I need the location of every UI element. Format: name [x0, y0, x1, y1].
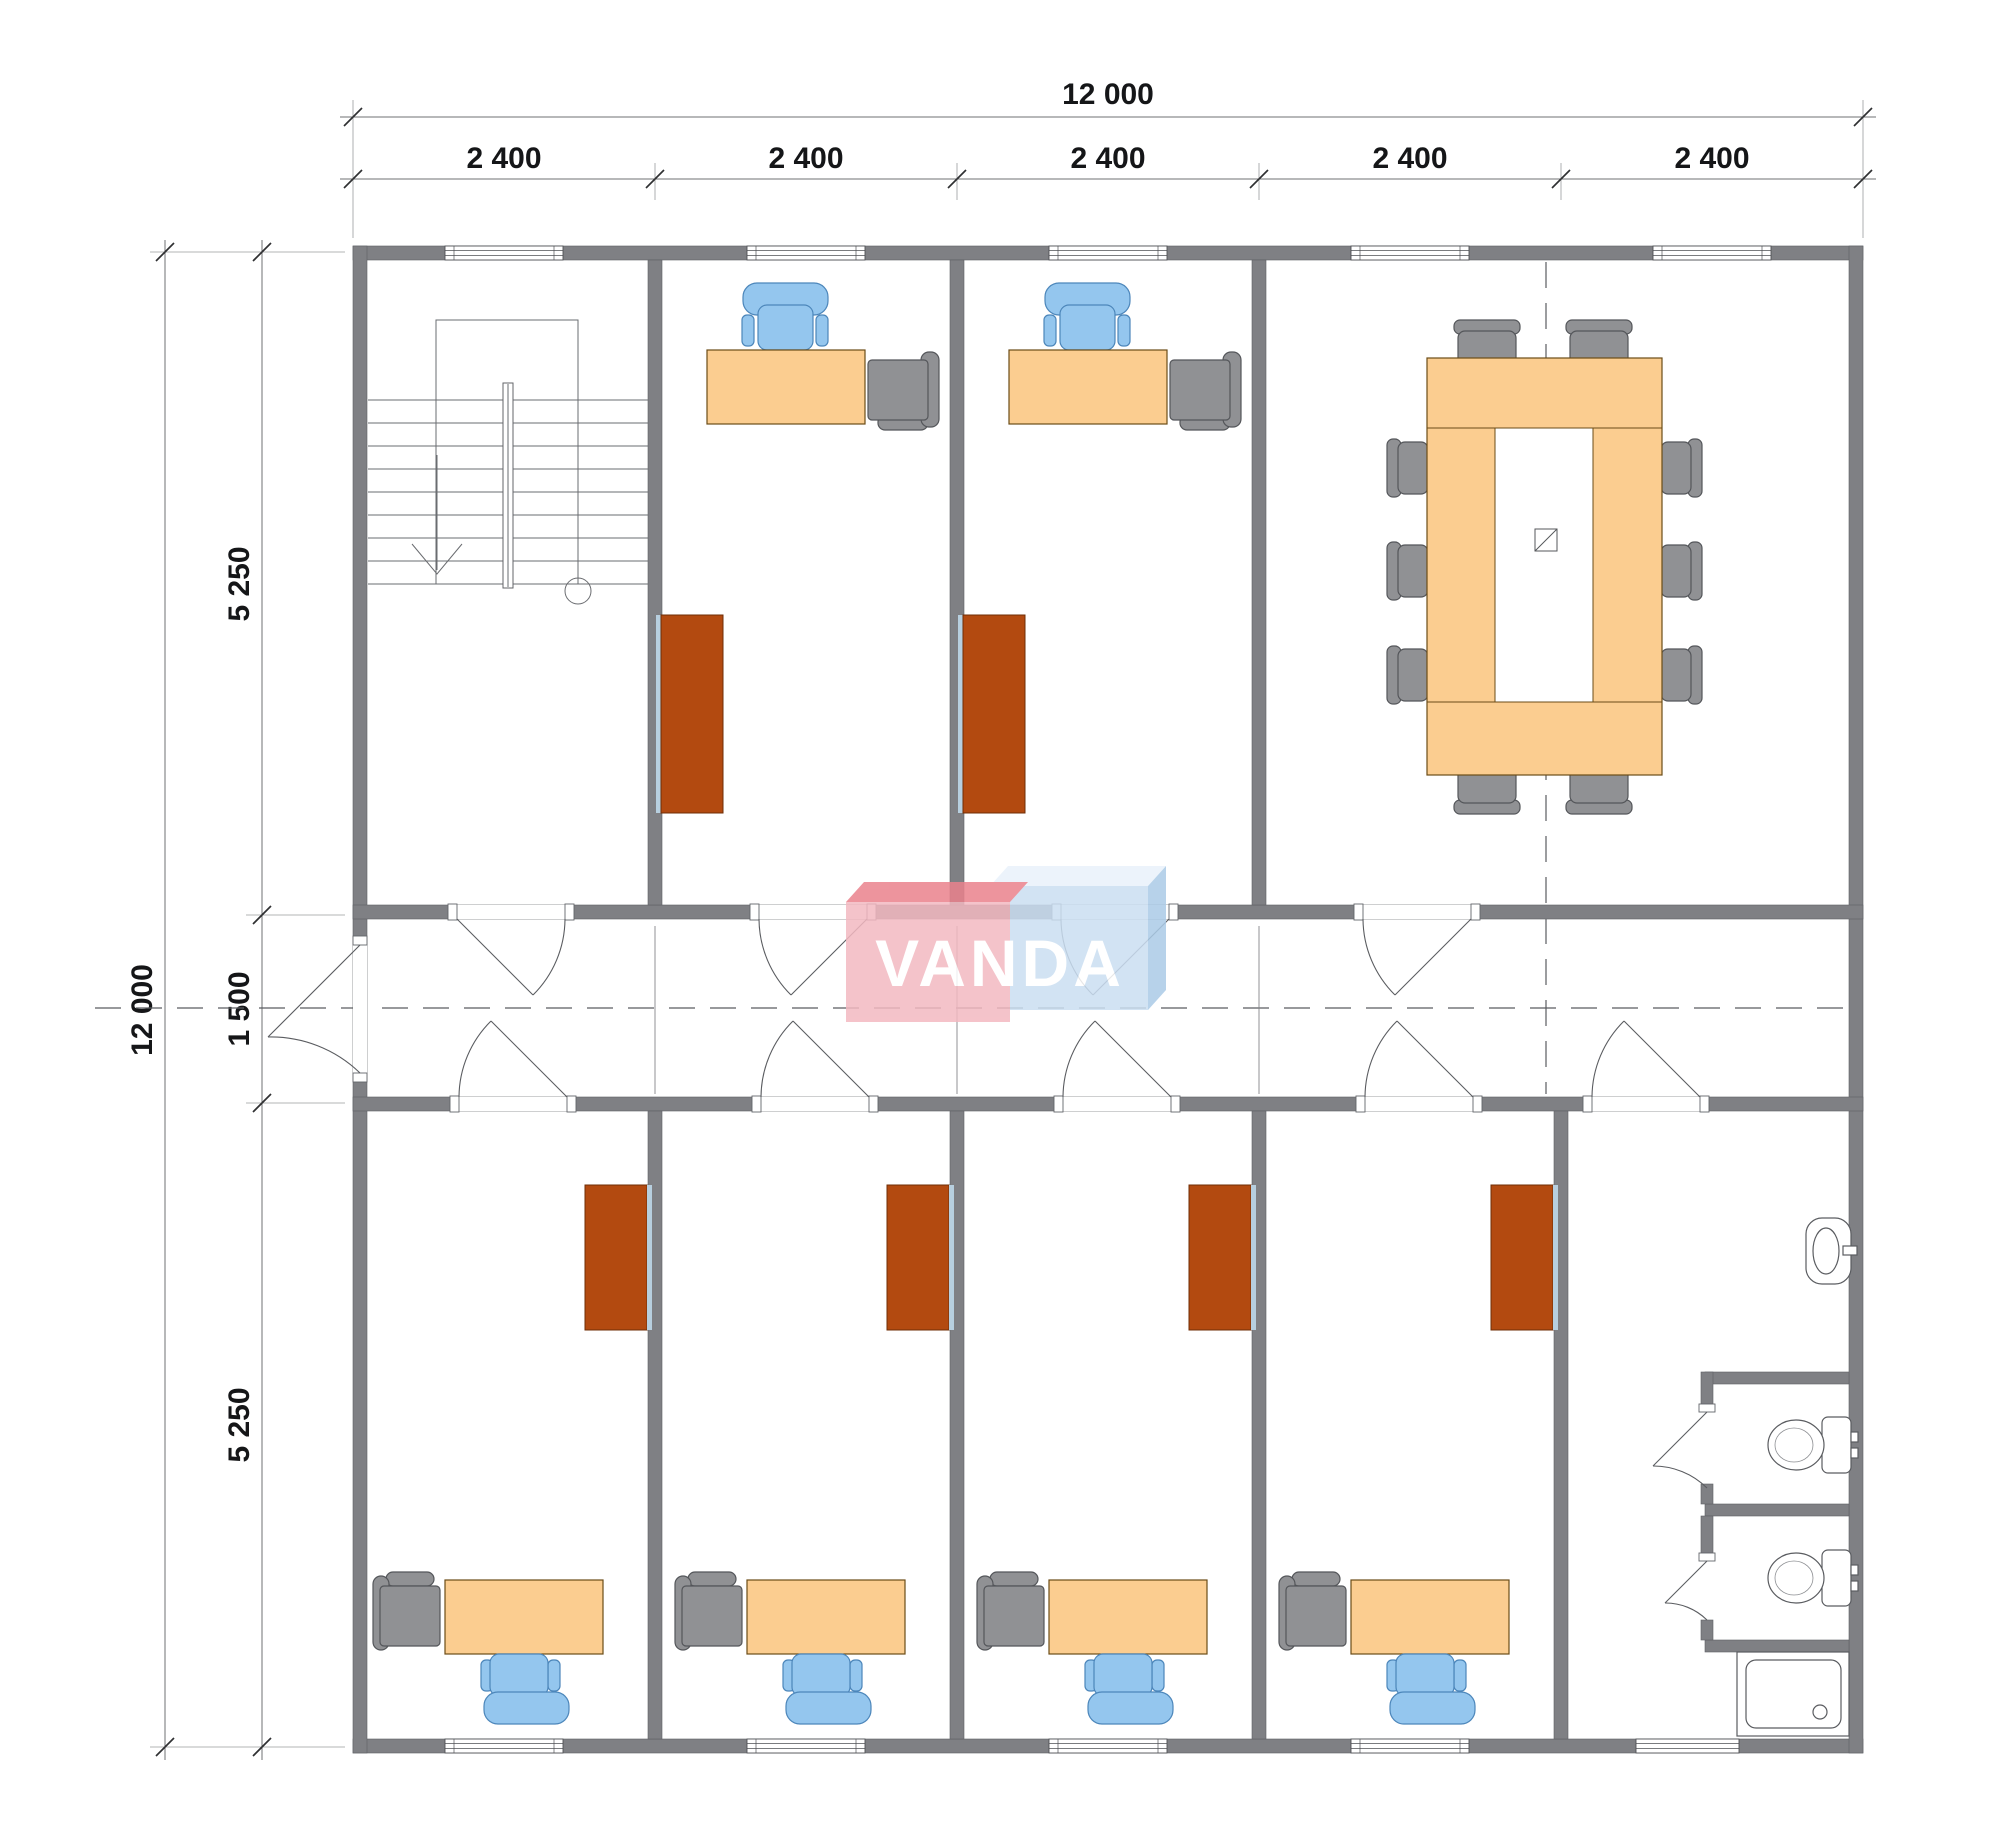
- dim-zone-corridor: 1 500: [223, 971, 256, 1046]
- meeting-room: [1387, 320, 1702, 814]
- workstation: [1009, 283, 1241, 430]
- window: [747, 246, 865, 260]
- toilet: [1768, 1417, 1858, 1473]
- conference-chair: [1661, 542, 1702, 600]
- outer-wall-right: [1849, 246, 1863, 1753]
- conference-chair: [1387, 646, 1428, 704]
- office-top-1: [656, 283, 939, 813]
- logo-pink-box-top: [846, 882, 1028, 902]
- dim-bay-2: 2 400: [768, 142, 843, 175]
- staircase: [368, 320, 648, 604]
- office-bottom-3: [977, 1185, 1256, 1724]
- office-bottom-1: [373, 1185, 652, 1724]
- conference-chair: [1661, 646, 1702, 704]
- partition-top-3: [1252, 260, 1266, 905]
- dim-total-width: 12 000: [1062, 78, 1154, 111]
- dimension-lines-left: 12 000 5 250 1 500 5 250: [126, 240, 345, 1760]
- window: [747, 1739, 865, 1753]
- stall-partition: [1705, 1372, 1849, 1384]
- floor-plan-drawing: 12 000 2 400 2 400 2 400 2 400 2 400 12 …: [0, 0, 2000, 1848]
- dim-bay-3: 2 400: [1070, 142, 1145, 175]
- stall-door-2: [1665, 1561, 1707, 1620]
- sink: [1806, 1218, 1857, 1284]
- window: [1351, 246, 1469, 260]
- workstation: [1279, 1572, 1509, 1724]
- cabinet-unit: [585, 1185, 652, 1330]
- shower-drain: [1813, 1705, 1827, 1719]
- dim-bay-1: 2 400: [466, 142, 541, 175]
- window: [1636, 1739, 1739, 1753]
- washroom: [1653, 1218, 1858, 1736]
- sink-tap: [1843, 1246, 1857, 1255]
- toilet: [1768, 1550, 1858, 1606]
- cabinet-unit: [656, 615, 723, 813]
- window: [445, 1739, 563, 1753]
- window: [1653, 246, 1771, 260]
- window: [445, 246, 563, 260]
- stall-door-1: [1653, 1412, 1707, 1488]
- dim-bay-4: 2 400: [1372, 142, 1447, 175]
- table-center-symbol: [1535, 529, 1557, 551]
- office-bottom-4: [1279, 1185, 1558, 1724]
- shower-tray: [1737, 1652, 1849, 1736]
- window: [1351, 1739, 1469, 1753]
- door-entrance: [268, 936, 367, 1082]
- logo-blue-box-side: [1148, 866, 1166, 1010]
- conference-table-opening: [1495, 428, 1593, 702]
- cabinet-unit: [1491, 1185, 1558, 1330]
- window: [1049, 1739, 1167, 1753]
- office-bottom-2: [675, 1185, 954, 1724]
- cabinet-unit: [958, 615, 1025, 813]
- floor-plan-canvas: 12 000 2 400 2 400 2 400 2 400 2 400 12 …: [0, 0, 2000, 1848]
- dim-zone-top: 5 250: [223, 546, 256, 621]
- vanda-logo: VANDA: [846, 866, 1166, 1022]
- workstation: [373, 1572, 603, 1724]
- window: [1049, 246, 1167, 260]
- dim-total-height: 12 000: [126, 964, 159, 1056]
- logo-text: VANDA: [875, 926, 1125, 1000]
- cabinet-unit: [887, 1185, 954, 1330]
- conference-chair: [1387, 439, 1428, 497]
- dim-bay-5: 2 400: [1674, 142, 1749, 175]
- workstation: [707, 283, 939, 430]
- cabinet-unit: [1189, 1185, 1256, 1330]
- workstation: [977, 1572, 1207, 1724]
- workstation: [675, 1572, 905, 1724]
- stall-partition: [1705, 1640, 1849, 1652]
- dimension-lines-top: 12 000 2 400 2 400 2 400 2 400 2 400: [340, 78, 1876, 238]
- conference-chair: [1661, 439, 1702, 497]
- conference-chair: [1387, 542, 1428, 600]
- dim-zone-bottom: 5 250: [223, 1387, 256, 1462]
- stall-partition: [1705, 1504, 1849, 1516]
- entrance-opening: [353, 945, 367, 1073]
- office-top-2: [958, 283, 1241, 813]
